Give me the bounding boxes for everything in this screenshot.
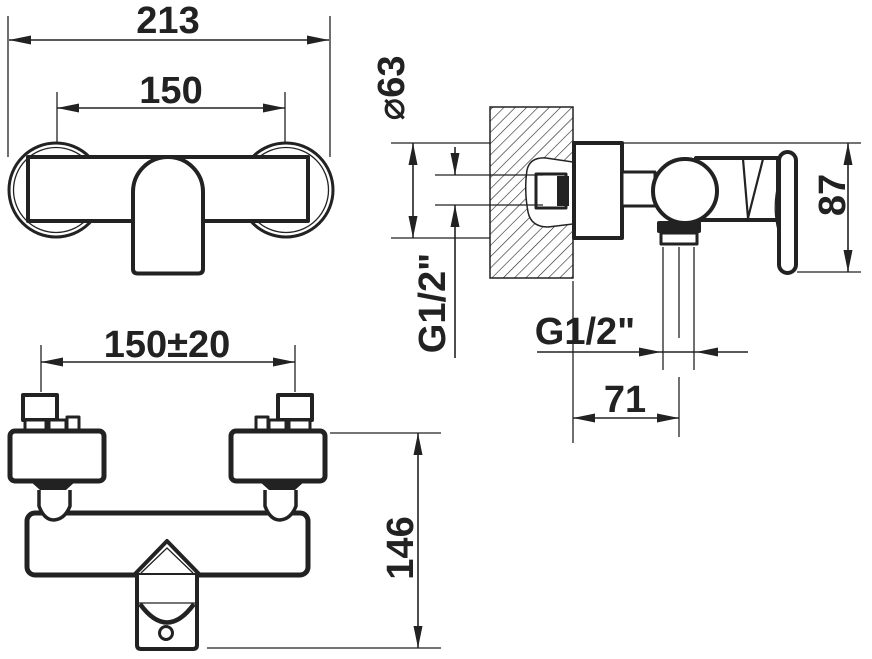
arrowhead [451,205,460,227]
escutcheon-side [574,143,622,238]
mixer-handle-front [133,157,203,274]
dimension-label-inlet-thread: G1/2" [412,253,454,353]
arrowhead [414,433,423,455]
dimension-height: 87 [797,143,861,272]
side-view: G1/2" 71 87 ⌀63 [371,55,861,443]
valve-body-side [653,159,717,223]
arrowhead [409,216,418,238]
dimension-label-overall-width: 213 [136,0,199,42]
dimension-bottom-hole-spacing: 150±20 [41,324,295,392]
left-union-assembly [10,395,104,490]
left-union-nut [10,431,104,481]
connector-neck-side [622,172,655,206]
technical-drawing: 213 150 [0,0,872,659]
dimension-label-height: 87 [812,174,854,216]
dimension-label-outlet-offset: 71 [604,379,646,421]
right-union-nut-top [278,395,312,420]
arrowhead [451,153,460,175]
wall-section [490,107,573,278]
dimension-escutcheon-diameter: ⌀63 [371,55,418,238]
right-neck-bottom [265,490,296,520]
arrowhead [844,143,853,165]
right-union-nut [231,431,325,481]
arrowhead [307,36,329,45]
left-neck-bottom [39,490,70,520]
dimension-label-outlet-thread: G1/2" [535,311,635,353]
arrowhead [844,250,853,272]
left-union-nut-top [23,395,57,420]
technical-drawing-page: 213 150 [0,0,872,659]
outlet-nipple-dark [657,221,701,233]
arrowhead [657,414,679,423]
arrowhead [273,358,295,367]
inlet-fitting-shadow [557,176,569,206]
outlet-thread-leaders [663,247,694,437]
dimension-label-hole-spacing: 150 [139,70,202,112]
right-union-assembly [231,395,325,490]
lever-blade-side [779,152,796,273]
dimension-depth: 146 [380,433,423,648]
arrowhead [9,36,31,45]
mixer-front-outline [9,143,333,274]
arrowhead [414,626,423,648]
spout-screw-hole [160,627,173,640]
arrowhead [696,348,718,357]
dimension-label-bottom-hole-spacing: 150±20 [104,324,231,366]
outlet-nipple [661,233,697,244]
arrowhead [41,358,63,367]
arrowhead [573,414,595,423]
arrowhead [57,104,79,113]
arrowhead [263,104,285,113]
bottom-view: 150±20 [10,324,441,649]
arrowhead [409,143,418,165]
front-view: 213 150 [8,0,333,274]
arrowhead [639,348,661,357]
mixer-side-outline [574,143,796,273]
dimension-outlet-thread: G1/2" [535,311,748,357]
dimension-label-escutcheon-diameter: ⌀63 [371,55,413,120]
dimension-label-depth: 146 [380,516,422,579]
